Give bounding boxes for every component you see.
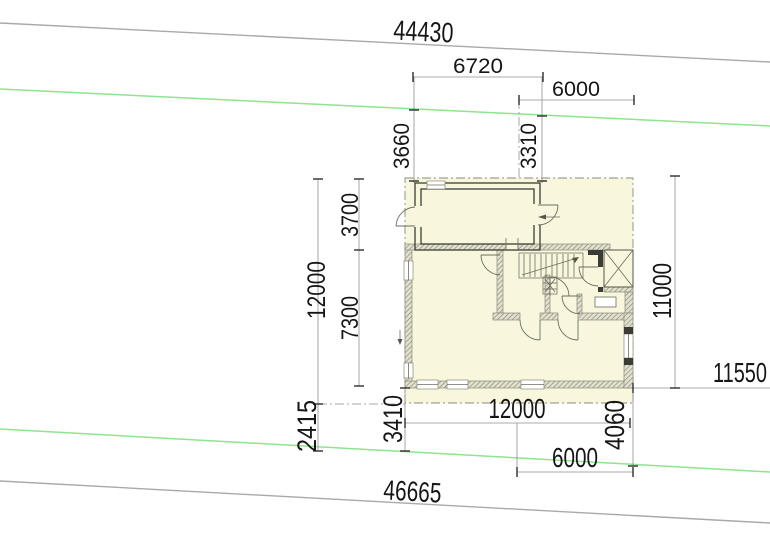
site-plan-canvas: 44430 6720 6000 3660 3310 12000 3700 730…: [0, 0, 770, 550]
upper-room-left-door-gap: [413, 206, 423, 227]
dim-offset-front-right: 3310: [516, 123, 541, 169]
dim-depth-total-left: 12000: [303, 261, 331, 319]
dim-offset-front-left: 3660: [389, 123, 414, 169]
wc-sink: [595, 297, 616, 307]
upper-room-right-door-gap: [532, 204, 543, 225]
dim-width-rear-right: 6000: [552, 442, 598, 473]
dim-offset-right: 11550: [713, 357, 767, 388]
dim-top-seg-right: 6000: [552, 78, 600, 101]
dim-top-seg-left: 6720: [453, 55, 503, 78]
dim-bottom-total: 46665: [383, 474, 443, 508]
plot-line-top: [0, 89, 770, 126]
dim-offset-rear-gap: 2415: [292, 400, 322, 452]
level-arrow: [398, 339, 403, 345]
site-plan-svg: 44430 6720 6000 3660 3310 12000 3700 730…: [0, 0, 770, 550]
dim-top-total: 44430: [393, 15, 454, 49]
dim-width-building: 12000: [489, 393, 546, 424]
dim-depth-total-right: 11000: [647, 263, 677, 319]
dim-depth-lower: 7300: [337, 296, 364, 340]
dim-depth-upper: 3700: [337, 193, 364, 237]
top-boundary-line: [0, 23, 770, 62]
dim-offset-rear-right: 4060: [599, 400, 630, 450]
dim-offset-rear-left: 3410: [378, 395, 408, 443]
